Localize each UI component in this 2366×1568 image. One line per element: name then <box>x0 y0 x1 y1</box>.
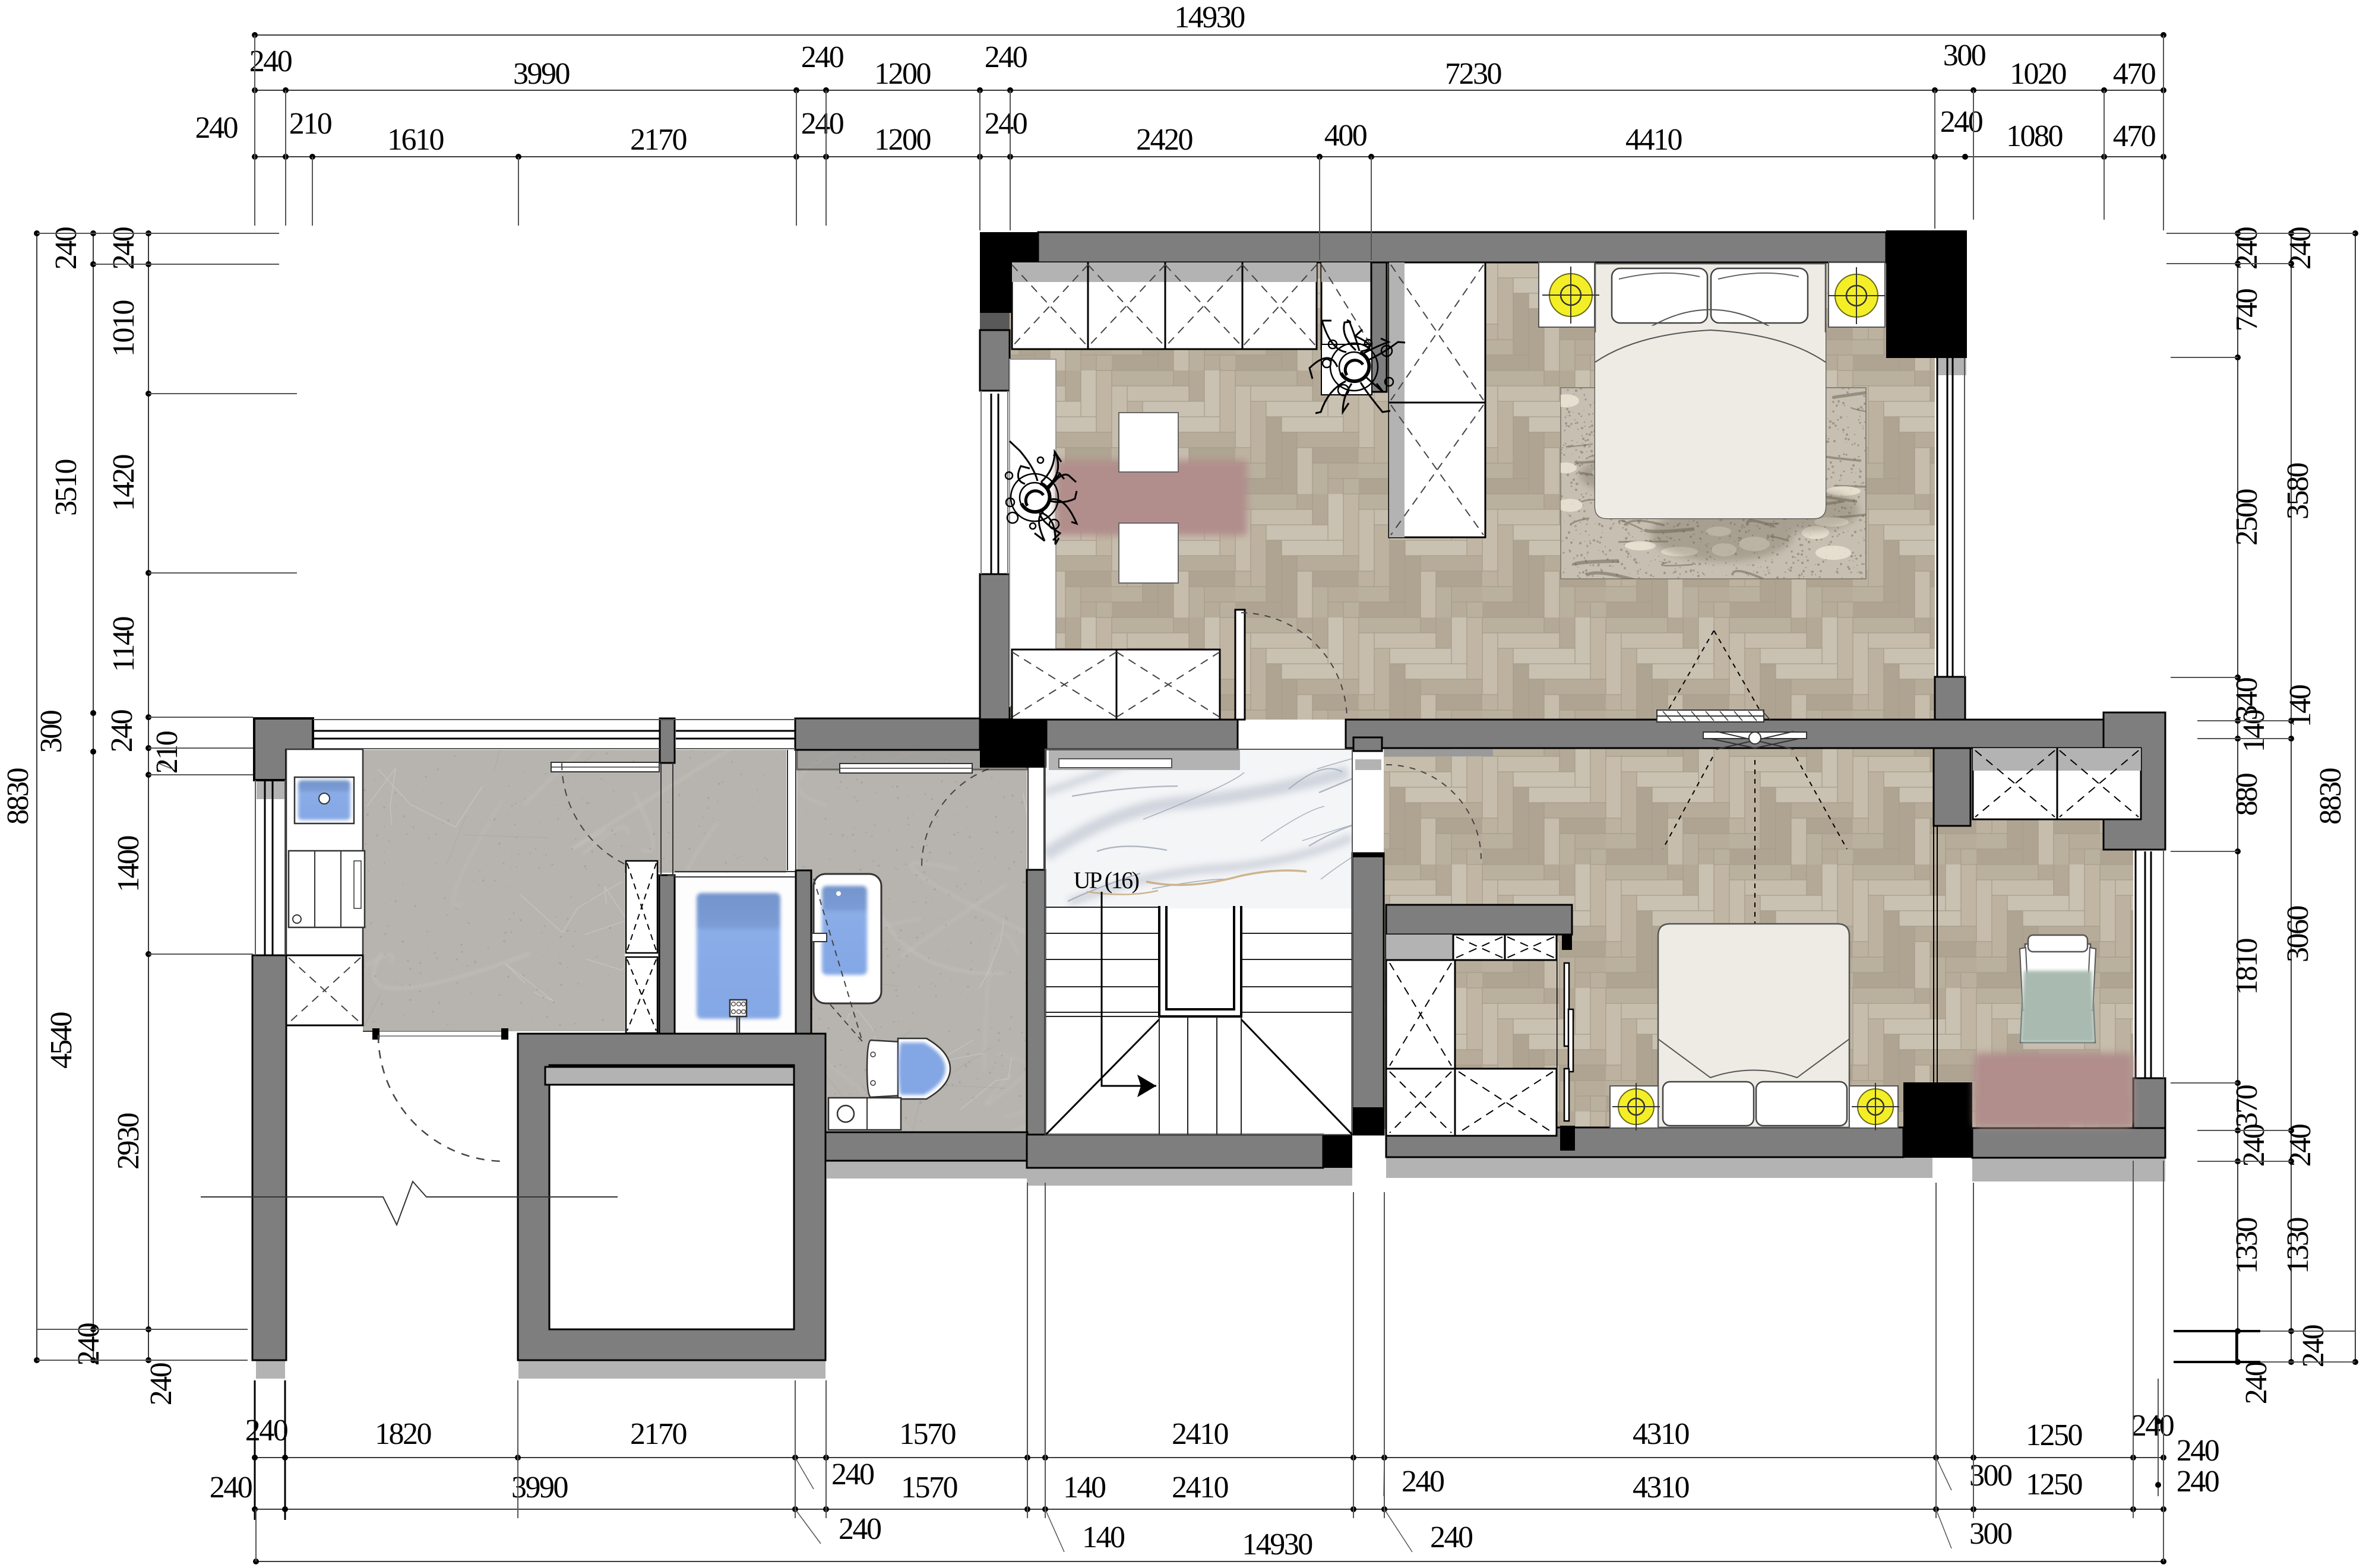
svg-text:140: 140 <box>2237 709 2271 752</box>
svg-text:240: 240 <box>2177 1434 2219 1468</box>
svg-text:240: 240 <box>801 40 844 74</box>
svg-text:240: 240 <box>144 1363 178 1405</box>
svg-text:300: 300 <box>1943 39 1986 72</box>
svg-text:240: 240 <box>2240 1361 2273 1404</box>
svg-text:1010: 1010 <box>107 300 141 357</box>
svg-text:3510: 3510 <box>49 460 83 517</box>
svg-text:300: 300 <box>34 710 68 753</box>
svg-text:1570: 1570 <box>901 1471 958 1504</box>
svg-text:3580: 3580 <box>2281 463 2315 520</box>
svg-text:2500: 2500 <box>2230 489 2264 546</box>
svg-text:4310: 4310 <box>1633 1471 1690 1504</box>
svg-text:740: 740 <box>2230 289 2264 331</box>
svg-text:2420: 2420 <box>1136 123 1193 157</box>
svg-text:1200: 1200 <box>874 57 931 91</box>
svg-text:4540: 4540 <box>45 1012 78 1069</box>
svg-text:1820: 1820 <box>375 1417 432 1451</box>
svg-text:240: 240 <box>831 1458 874 1491</box>
svg-text:240: 240 <box>801 107 844 141</box>
svg-text:210: 210 <box>289 107 332 141</box>
svg-text:300: 300 <box>1969 1459 2012 1493</box>
svg-text:1810: 1810 <box>2230 939 2264 996</box>
svg-text:14930: 14930 <box>1174 1 1245 34</box>
svg-text:3990: 3990 <box>513 57 570 91</box>
svg-text:UP (16): UP (16) <box>1074 867 1139 894</box>
svg-text:470: 470 <box>2113 119 2156 153</box>
svg-text:1420: 1420 <box>107 455 141 512</box>
svg-text:8830: 8830 <box>2314 768 2348 825</box>
svg-text:1330: 1330 <box>2281 1218 2315 1275</box>
svg-text:14930: 14930 <box>1242 1528 1312 1561</box>
svg-text:240: 240 <box>985 40 1027 74</box>
svg-text:1080: 1080 <box>2006 119 2063 153</box>
svg-text:470: 470 <box>2113 57 2156 91</box>
svg-text:240: 240 <box>839 1512 881 1546</box>
svg-text:4410: 4410 <box>1625 123 1682 157</box>
svg-text:140: 140 <box>1063 1471 1106 1504</box>
svg-text:2170: 2170 <box>630 123 687 157</box>
svg-text:1020: 1020 <box>2010 57 2067 91</box>
svg-text:240: 240 <box>985 107 1027 141</box>
svg-text:1250: 1250 <box>2026 1418 2083 1452</box>
svg-text:240: 240 <box>210 1471 252 1504</box>
svg-text:4310: 4310 <box>1633 1417 1690 1451</box>
svg-text:240: 240 <box>2177 1465 2219 1499</box>
svg-text:880: 880 <box>2230 773 2264 816</box>
svg-text:240: 240 <box>245 1414 288 1447</box>
svg-text:3060: 3060 <box>2281 906 2315 963</box>
svg-text:140: 140 <box>1082 1521 1125 1554</box>
svg-text:240: 240 <box>1430 1521 1473 1554</box>
svg-text:240: 240 <box>1940 105 1983 139</box>
svg-text:1140: 1140 <box>107 616 141 672</box>
svg-text:2410: 2410 <box>1172 1417 1229 1451</box>
svg-text:3990: 3990 <box>511 1471 568 1504</box>
svg-text:1330: 1330 <box>2230 1218 2264 1275</box>
svg-text:240: 240 <box>249 45 292 78</box>
svg-text:2930: 2930 <box>112 1113 145 1170</box>
svg-text:240: 240 <box>105 709 139 752</box>
svg-text:1570: 1570 <box>899 1417 956 1451</box>
svg-text:8830: 8830 <box>1 768 35 825</box>
svg-text:2170: 2170 <box>630 1417 687 1451</box>
svg-text:370: 370 <box>2230 1085 2264 1127</box>
svg-text:300: 300 <box>1969 1517 2012 1551</box>
svg-text:210: 210 <box>150 731 184 774</box>
svg-text:1400: 1400 <box>112 836 145 893</box>
svg-text:240: 240 <box>2131 1409 2174 1443</box>
svg-text:1610: 1610 <box>387 123 444 157</box>
svg-text:1250: 1250 <box>2026 1468 2083 1502</box>
svg-text:2410: 2410 <box>1172 1471 1229 1504</box>
svg-text:1200: 1200 <box>874 123 931 157</box>
svg-text:7230: 7230 <box>1445 57 1502 91</box>
svg-text:240: 240 <box>195 111 238 145</box>
svg-text:240: 240 <box>1402 1465 1444 1499</box>
svg-text:400: 400 <box>1324 119 1367 153</box>
